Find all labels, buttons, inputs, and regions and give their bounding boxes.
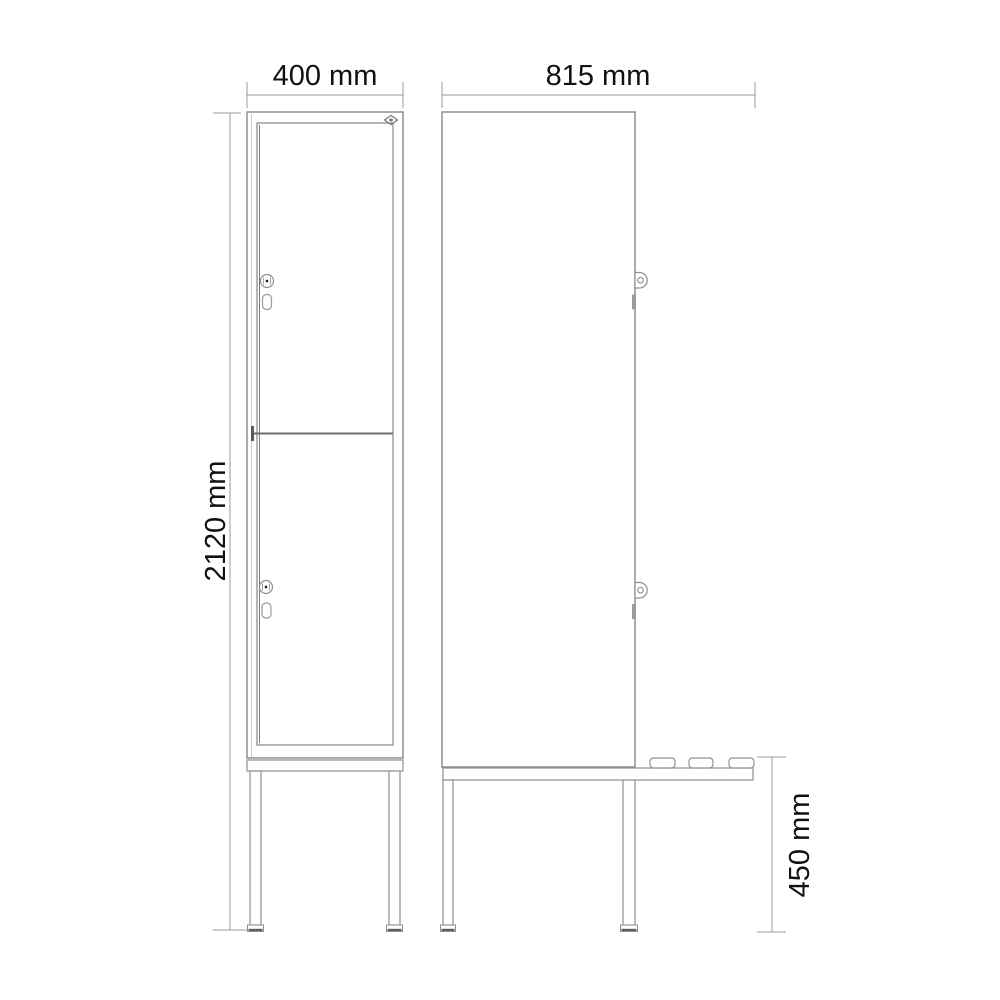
front-leg-left	[250, 771, 261, 925]
side-bench-rail	[443, 768, 753, 780]
dimension-bench-height	[757, 757, 786, 932]
dimension-label-bench-height: 450 mm	[784, 793, 816, 898]
front-foot-right	[387, 925, 403, 932]
door-divider-hinge-mark	[251, 426, 254, 441]
side-leg-rear	[623, 780, 635, 925]
side-foot-front	[441, 925, 456, 932]
front-leg-right	[389, 771, 400, 925]
front-bench-rail	[247, 760, 403, 771]
dimension-label-side-depth: 815 mm	[546, 60, 651, 92]
hinge-pin-lower	[632, 604, 636, 619]
side-view	[441, 112, 755, 932]
hinge-pin-upper	[632, 295, 636, 310]
bench-slat	[650, 758, 675, 768]
side-cabinet-body	[442, 112, 635, 767]
lock-icon-lower	[260, 581, 273, 594]
bench-slats	[650, 758, 754, 768]
technical-drawing-canvas: 400 mm 815 mm 2120 mm 450 mm	[0, 0, 1000, 1000]
side-leg-front	[443, 780, 453, 925]
dimension-label-front-width: 400 mm	[273, 60, 378, 92]
lock-icon-upper	[261, 275, 274, 288]
side-foot-rear	[621, 925, 638, 932]
front-foot-left	[248, 925, 264, 932]
handle-slot-lower	[262, 603, 271, 618]
front-view	[247, 112, 403, 932]
bench-slat	[689, 758, 713, 768]
locker-drawing: 400 mm 815 mm 2120 mm 450 mm	[0, 0, 1000, 1000]
handle-slot-upper	[263, 295, 272, 310]
bench-slat	[729, 758, 754, 768]
dimension-label-overall-height: 2120 mm	[200, 461, 232, 582]
